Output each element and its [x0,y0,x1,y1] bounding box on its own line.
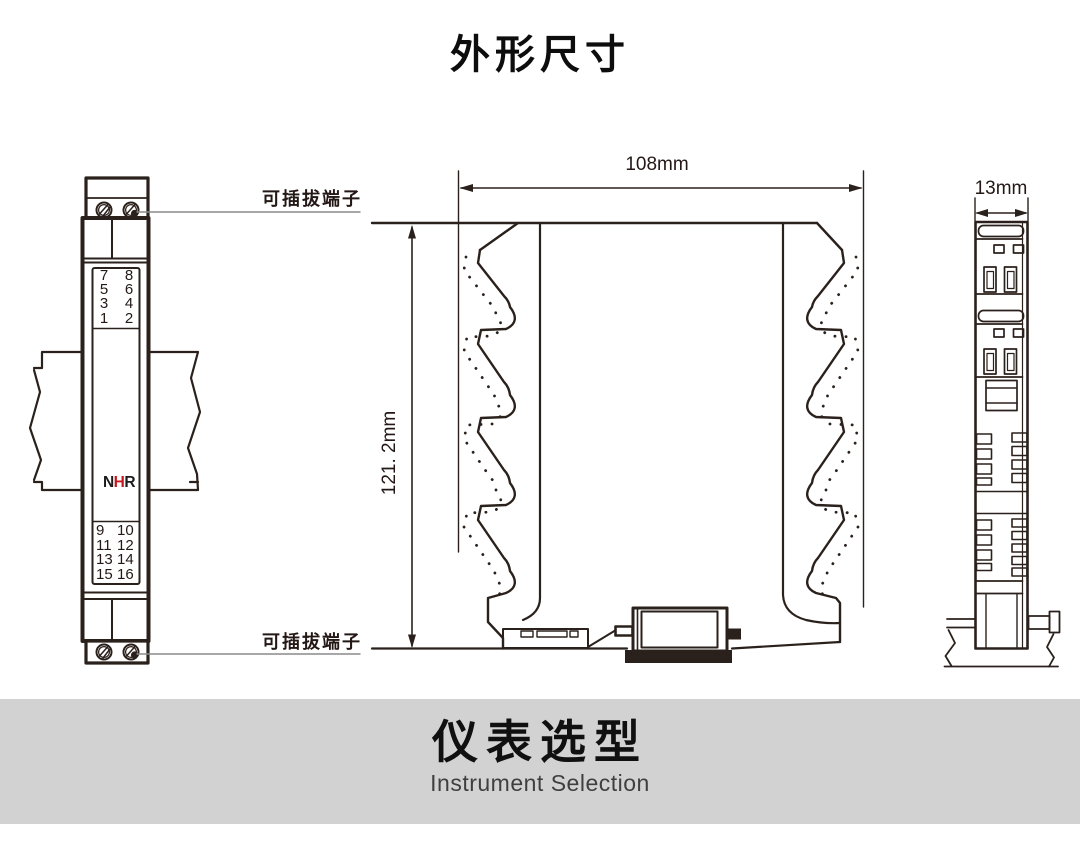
edge-view [945,198,1060,667]
section-subheading: Instrument Selection [430,770,650,797]
lower-terminal-numbers: 9 10 11 12 13 14 15 16 [96,524,137,582]
outline-dimension-page: 外形尺寸 可插拔端子 可插拔端子 7 8 5 6 3 4 1 2 9 10 11… [0,0,1080,843]
dimension-13mm [975,198,1028,221]
edge-body [976,222,1028,649]
page-title: 外形尺寸 [0,22,1080,80]
leader-anchor-dot [131,210,138,217]
logo-letter-r: R [124,474,135,491]
width-dimension-label: 108mm [600,154,714,176]
dimension-121mm [408,225,416,648]
terminal-number: 2 [125,312,133,326]
left-fin-dotted [464,257,501,600]
side-view [372,171,864,663]
leader-lines [137,212,360,654]
right-fin-edge [807,250,844,642]
dimension-108mm [459,171,864,607]
plug-terminal-label-bottom: 可插拔端子 [254,628,370,654]
thickness-dimension-label: 13mm [960,178,1042,200]
plug-terminal-label-top: 可插拔端子 [254,185,370,211]
nhr-brand-logo: NHR [96,474,142,492]
terminal-number: 15 [96,568,113,583]
housing-outline [372,223,858,649]
section-heading: 仪表选型 [432,716,648,769]
logo-letter-h: H [114,474,125,491]
leader-anchor-dot [131,651,138,658]
height-dimension-label: 121. 2mm [379,393,399,513]
device-body [83,178,149,663]
upper-terminal-numbers: 7 8 5 6 3 4 1 2 [95,269,138,326]
terminal-number: 1 [100,312,108,326]
section-banner: 仪表选型 Instrument Selection [0,699,1080,824]
din-clip-lock [616,608,742,663]
left-fin-edge [478,250,515,649]
logo-letter-n: N [103,474,114,491]
front-view [30,178,360,663]
terminal-number: 16 [117,568,134,583]
din-clip-slider [503,629,616,648]
right-fin-dotted [821,257,858,600]
